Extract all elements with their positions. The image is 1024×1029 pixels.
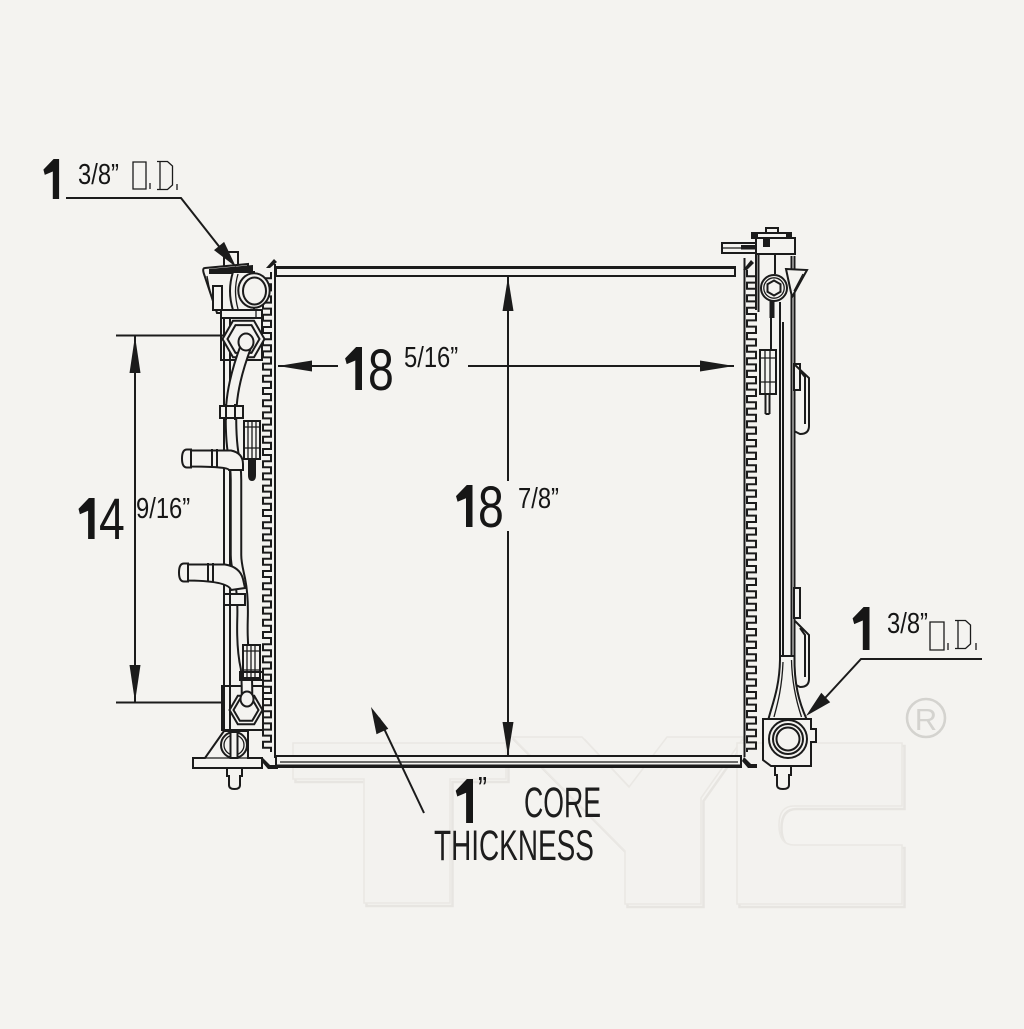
svg-text:CORE: CORE [524, 779, 601, 827]
svg-text:R: R [915, 702, 937, 737]
svg-text:8: 8 [368, 338, 394, 403]
svg-text:”: ” [478, 772, 487, 808]
svg-text:3/8”: 3/8” [78, 158, 119, 191]
svg-text:8: 8 [478, 475, 504, 540]
svg-text:4: 4 [99, 487, 125, 552]
svg-text:THICKNESS: THICKNESS [434, 821, 594, 870]
svg-text:5/16”: 5/16” [404, 341, 458, 374]
svg-text:3/8”: 3/8” [887, 607, 928, 640]
svg-text:7/8”: 7/8” [518, 482, 559, 515]
svg-text:9/16”: 9/16” [136, 492, 190, 525]
